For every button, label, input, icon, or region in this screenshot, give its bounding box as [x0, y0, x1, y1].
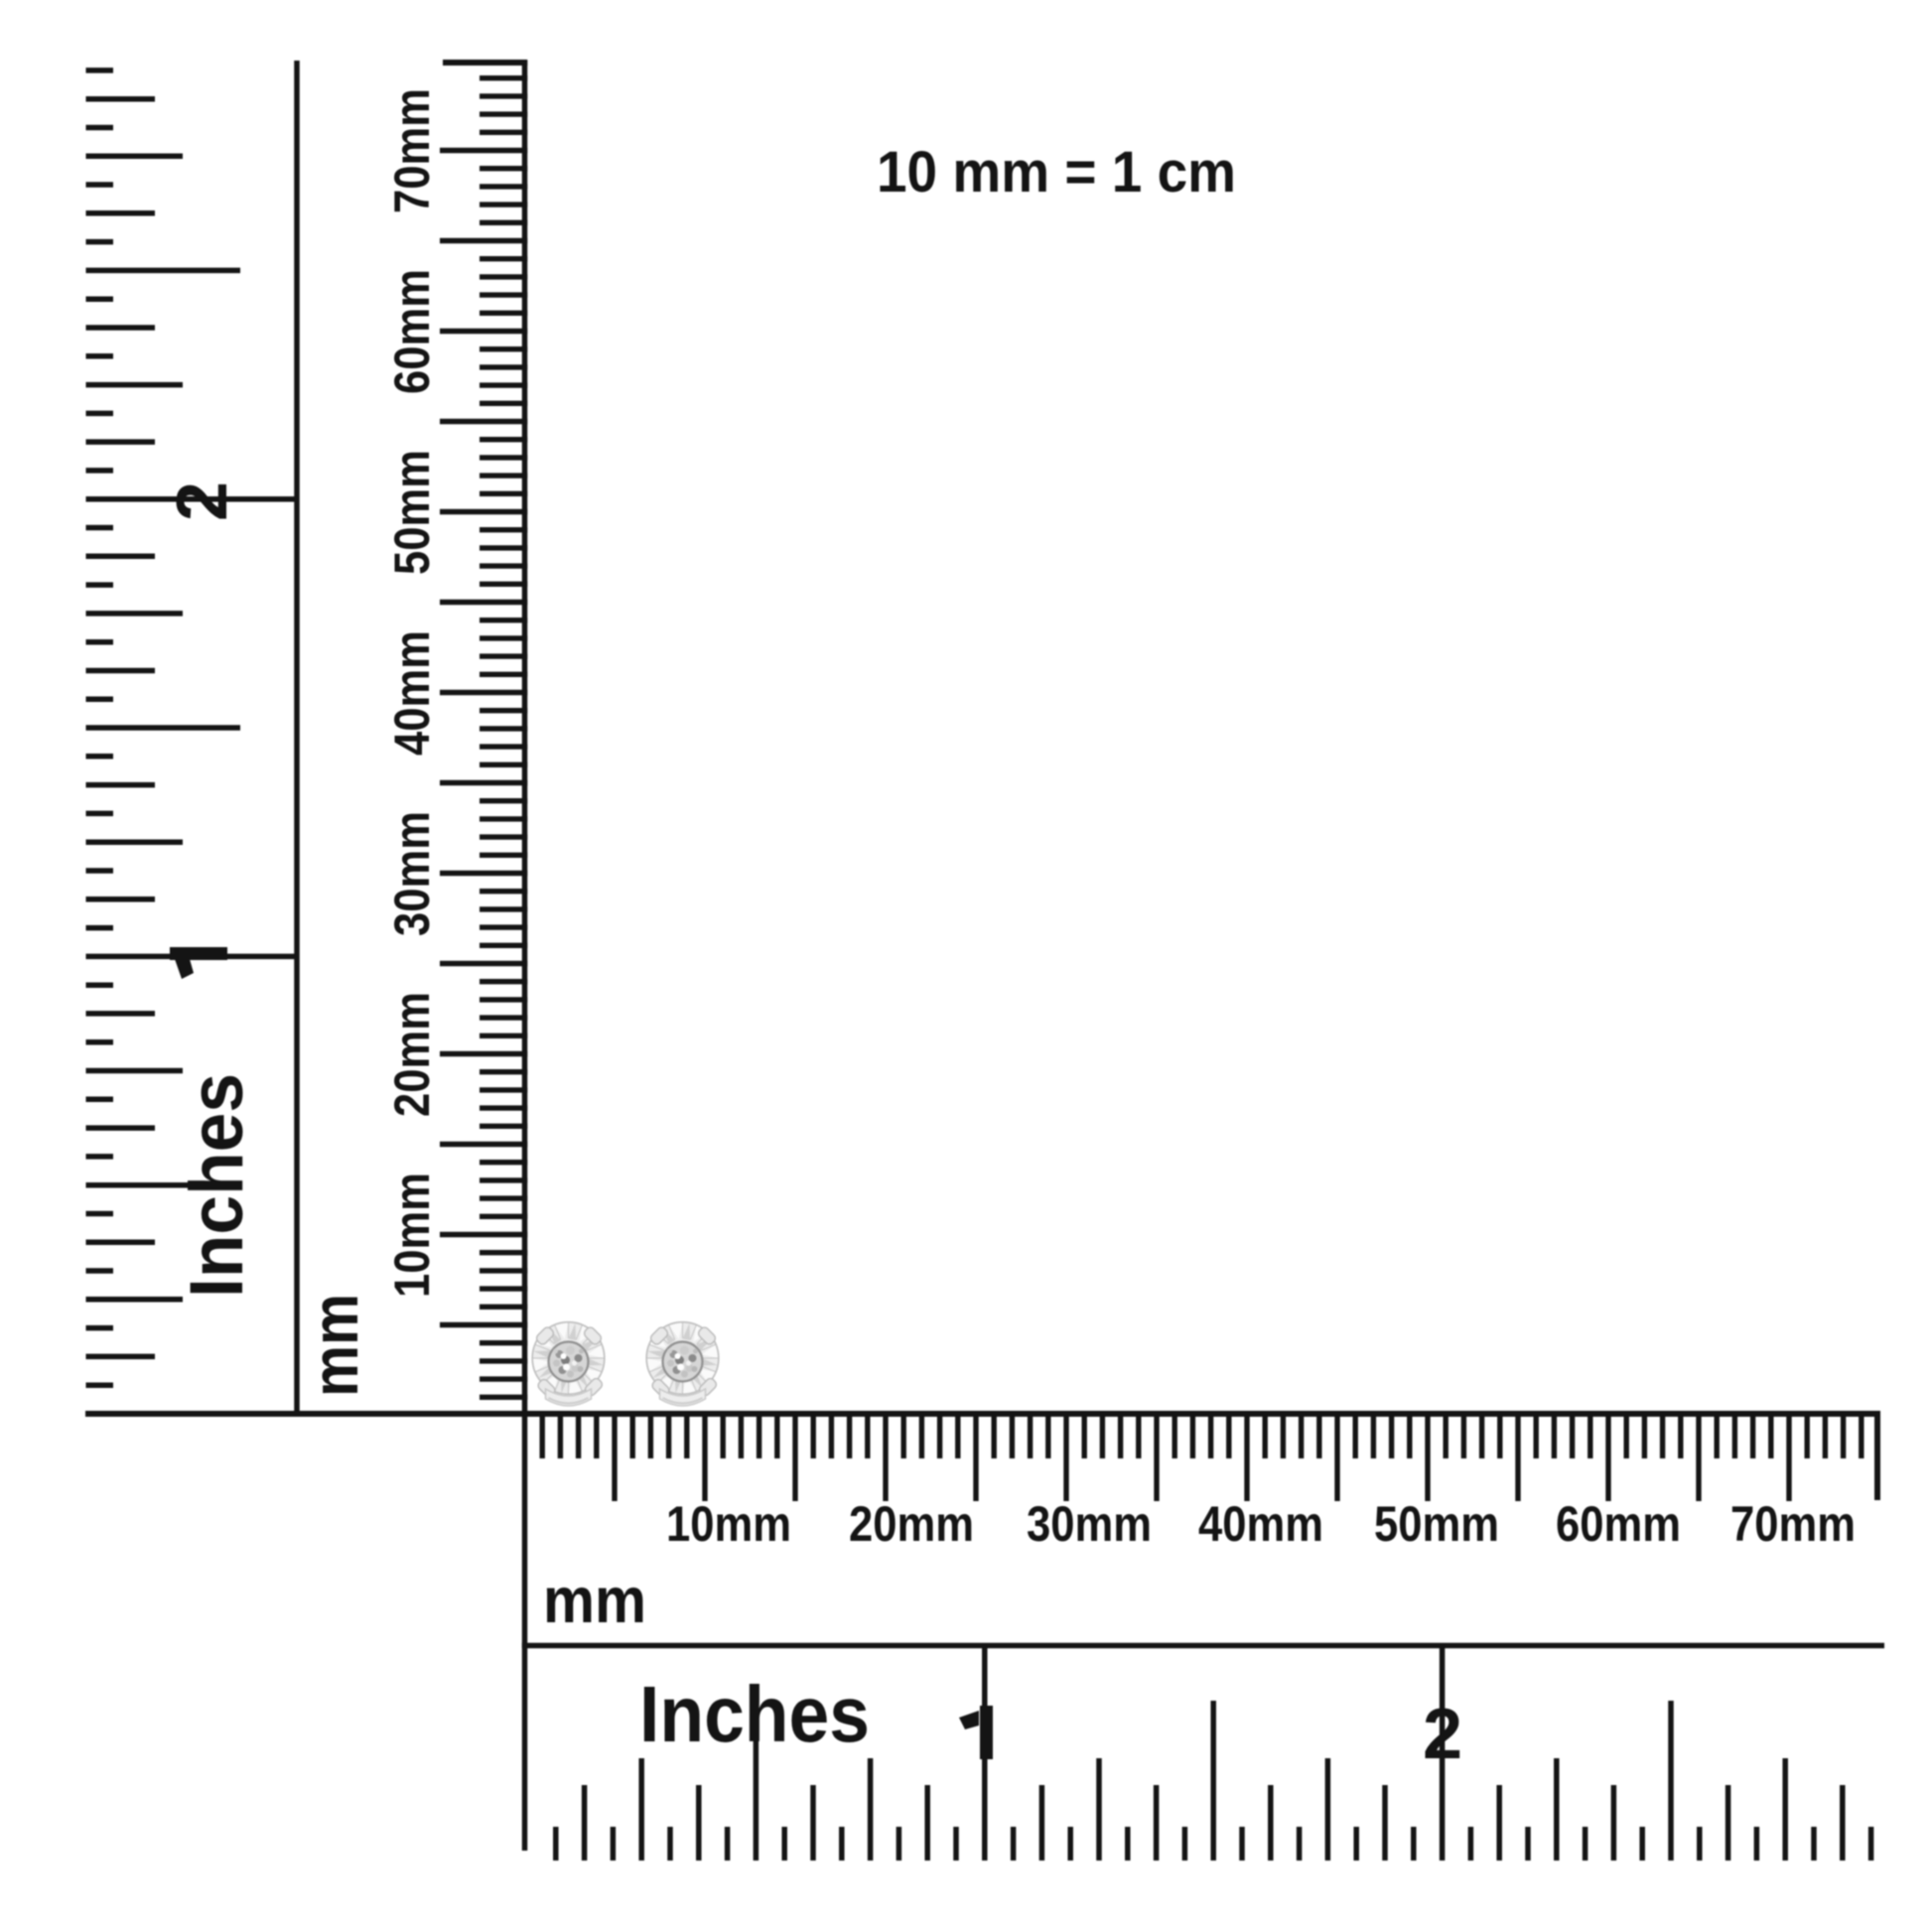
svg-text:50mm: 50mm: [384, 450, 440, 575]
svg-text:60mm: 60mm: [1556, 1496, 1681, 1552]
svg-text:20mm: 20mm: [384, 992, 440, 1117]
svg-text:40mm: 40mm: [384, 630, 440, 756]
svg-text:50mm: 50mm: [1374, 1496, 1499, 1552]
svg-text:mm: mm: [298, 1294, 371, 1397]
svg-text:60mm: 60mm: [384, 269, 440, 394]
svg-text:10mm: 10mm: [384, 1173, 440, 1298]
svg-text:30mm: 30mm: [1027, 1496, 1152, 1552]
svg-text:40mm: 40mm: [1198, 1496, 1323, 1552]
svg-text:30mm: 30mm: [384, 811, 440, 936]
svg-text:10mm: 10mm: [666, 1496, 791, 1552]
svg-text:10 mm = 1 cm: 10 mm = 1 cm: [877, 140, 1236, 205]
svg-text:70mm: 70mm: [384, 88, 440, 213]
svg-text:Inches: Inches: [175, 1073, 259, 1298]
svg-text:2: 2: [163, 482, 242, 521]
svg-text:Inches: Inches: [639, 1670, 870, 1758]
svg-text:2: 2: [1423, 1695, 1462, 1774]
svg-text:20mm: 20mm: [849, 1496, 974, 1552]
svg-text:mm: mm: [543, 1564, 646, 1636]
svg-text:70mm: 70mm: [1730, 1496, 1856, 1552]
